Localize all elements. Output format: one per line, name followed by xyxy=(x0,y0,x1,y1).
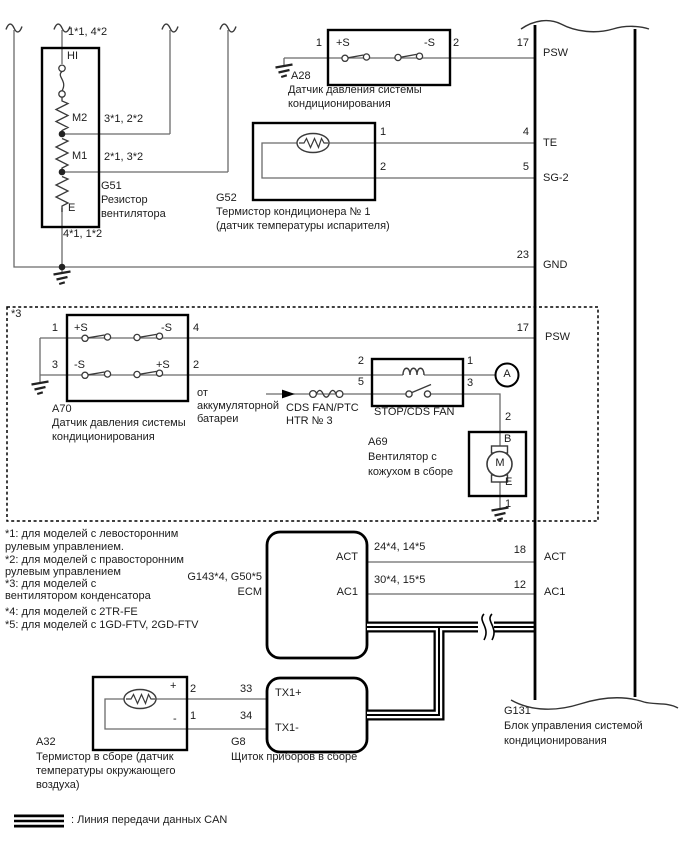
footnote-5: *5: для моделей с 1GD-FTV, 2GD-FTV xyxy=(5,619,198,632)
bus-pin-23: 23 xyxy=(497,249,529,262)
a28-minus-s: -S xyxy=(424,37,435,50)
a70-name-line1: Датчик давления системы xyxy=(52,417,186,430)
g131-name-line2: кондиционирования xyxy=(504,735,607,748)
terminal-m1: M1 xyxy=(72,150,87,163)
wire-label-act: 24*4, 14*5 xyxy=(374,541,425,554)
g51-name-line1: Резистор xyxy=(101,194,148,207)
a70-pin4: 4 xyxy=(193,322,199,335)
ecm-name: ECM xyxy=(152,586,262,599)
a32-code: A32 xyxy=(36,736,56,749)
bus-pin-4: 4 xyxy=(503,126,529,139)
a70-switch-icon xyxy=(82,333,163,378)
a32-plus: + xyxy=(170,680,176,693)
relay-pin3: 3 xyxy=(467,377,473,390)
bus-pin-12: 12 xyxy=(500,579,526,592)
a70-row1-minus-s: -S xyxy=(161,322,172,335)
a28-code: A28 xyxy=(291,70,311,83)
bus-pin-5: 5 xyxy=(503,161,529,174)
g8-terminal-tx1-minus: TX1- xyxy=(275,722,299,735)
a28-pin2: 2 xyxy=(453,37,459,50)
battery-label-line2: аккумуляторной xyxy=(197,400,279,413)
fuse-label-line1: CDS FAN/PTC xyxy=(286,402,359,415)
a69-terminal-b: B xyxy=(504,433,511,446)
a69-pin2: 2 xyxy=(505,411,511,424)
g8-terminal-tx1-plus: TX1+ xyxy=(275,687,302,700)
battery-label-line3: батареи xyxy=(197,413,238,426)
a70-row1-plus-s: +S xyxy=(74,322,88,335)
terminal-m2: M2 xyxy=(72,112,87,125)
a32-name-line2: температуры окружающего xyxy=(36,765,176,778)
bus-pin-17-mid: 17 xyxy=(497,322,529,335)
a69-name-line1: Вентилятор с xyxy=(368,451,437,464)
g52-name-line1: Термистор кондиционера № 1 xyxy=(216,206,370,219)
bus-pin-18: 18 xyxy=(500,544,526,557)
wiring-diagram: 1*1, 4*2 HI M2 3*1, 2*2 M1 2*1, 3*2 G51 … xyxy=(0,0,688,852)
a69-name-line2: кожухом в сборе xyxy=(368,466,453,479)
relay-name: STOP/CDS FAN xyxy=(374,406,454,419)
ecm-terminal-ac1: AC1 xyxy=(320,586,358,599)
footnote-3b: вентилятором конденсатора xyxy=(5,590,151,603)
g8-pin-33: 33 xyxy=(240,683,252,696)
terminal-e: E xyxy=(68,202,75,215)
bus-terminal-te: TE xyxy=(543,137,557,150)
a32-pin2: 2 xyxy=(190,683,196,696)
a32-pin1: 1 xyxy=(190,710,196,723)
a70-pin2: 2 xyxy=(193,359,199,372)
fuse-label-line2: HTR № 3 xyxy=(286,415,333,428)
g131-name-line1: Блок управления системой xyxy=(504,720,643,733)
relay-coil-icon xyxy=(403,368,431,397)
g131-bus xyxy=(511,21,678,710)
a32-name-line3: воздуха) xyxy=(36,779,80,792)
g51-box xyxy=(42,48,99,227)
g52-thermistor-icon xyxy=(297,134,329,153)
wire-break-icon xyxy=(6,24,236,32)
bus-terminal-act: ACT xyxy=(544,551,566,564)
can-legend-text: : Линия передачи данных CAN xyxy=(71,814,227,827)
wire-label-m1: 2*1, 3*2 xyxy=(104,151,143,164)
a69-pin1: 1 xyxy=(505,498,511,511)
g51-code: G51 xyxy=(101,180,122,193)
terminal-hi: HI xyxy=(67,50,78,63)
wire-label-m2: 3*1, 2*2 xyxy=(104,113,143,126)
a70-code: A70 xyxy=(52,403,72,416)
wire-label-ac1: 30*4, 15*5 xyxy=(374,574,425,587)
wire-label-g51-bottom: 4*1, 1*2 xyxy=(63,228,102,241)
a32-name-line1: Термистор в сборе (датчик xyxy=(36,751,174,764)
g52-pin2: 2 xyxy=(380,161,386,174)
g51-name-line2: вентилятора xyxy=(101,208,166,221)
g131-code: G131 xyxy=(504,705,531,718)
connector-a-letter: A xyxy=(500,368,514,381)
a70-row2-plus-s: +S xyxy=(156,359,170,372)
g8-name: Щиток приборов в сборе xyxy=(231,751,357,764)
bus-pin-17-top: 17 xyxy=(503,37,529,50)
relay-box xyxy=(372,359,463,406)
region-note-3: *3 xyxy=(11,308,21,321)
bus-terminal-sg2: SG-2 xyxy=(543,172,569,185)
a28-pin1: 1 xyxy=(302,37,322,50)
g52-pin1: 1 xyxy=(380,126,386,139)
a28-name-line2: кондиционирования xyxy=(288,98,391,111)
a28-switch-icon xyxy=(342,53,423,61)
footnote-4: *4: для моделей с 2TR-FE xyxy=(5,606,138,619)
a70-row2-minus-s: -S xyxy=(74,359,85,372)
bus-terminal-ac1: AC1 xyxy=(544,586,565,599)
a70-name-line2: кондиционирования xyxy=(52,431,155,444)
wire-label-g51-top: 1*1, 4*2 xyxy=(68,26,107,39)
g51-resistor-icon xyxy=(56,65,68,212)
bus-terminal-psw-top: PSW xyxy=(543,47,568,60)
a28-name-line1: Датчик давления системы xyxy=(288,84,422,97)
g8-code: G8 xyxy=(231,736,246,749)
footnote-1b: рулевым управлением. xyxy=(5,541,124,554)
motor-letter: M xyxy=(493,457,507,470)
can-line xyxy=(367,614,535,715)
a69-code: A69 xyxy=(368,436,388,449)
g8-pin-34: 34 xyxy=(240,710,252,723)
a32-minus: - xyxy=(173,713,177,726)
a69-terminal-e: E xyxy=(505,476,512,489)
ecm-code: G143*4, G50*5 xyxy=(152,571,262,584)
a28-plus-s: +S xyxy=(336,37,350,50)
relay-pin5: 5 xyxy=(346,376,364,389)
g52-code: G52 xyxy=(216,192,237,205)
a32-thermistor-icon xyxy=(124,690,156,709)
battery-label-line1: от xyxy=(197,387,208,400)
a70-pin1: 1 xyxy=(40,322,58,335)
relay-pin2: 2 xyxy=(346,355,364,368)
a70-pin3: 3 xyxy=(40,359,58,372)
g52-name-line2: (датчик температуры испарителя) xyxy=(216,220,390,233)
ecm-terminal-act: ACT xyxy=(320,551,358,564)
relay-pin1: 1 xyxy=(467,355,473,368)
footnote-1a: *1: для моделей с левосторонним xyxy=(5,528,178,541)
bus-terminal-psw-mid: PSW xyxy=(545,331,570,344)
bus-terminal-gnd: GND xyxy=(543,259,567,272)
